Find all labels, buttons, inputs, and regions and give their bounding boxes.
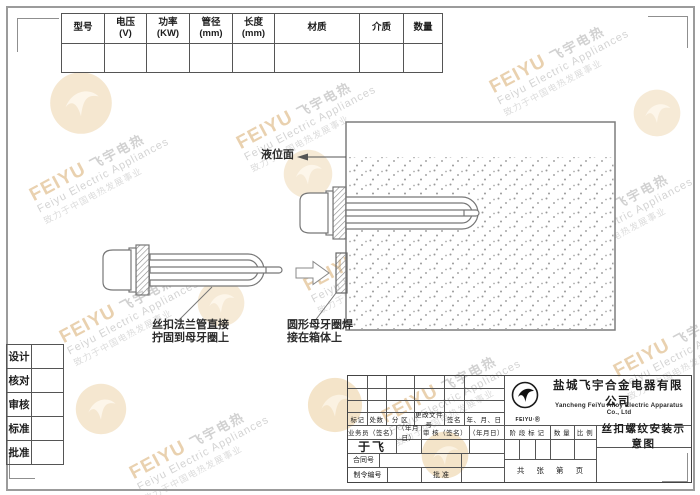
signer-name: 于飞	[348, 439, 396, 453]
ring-note: 圆形母牙圈焊 接在箱体上	[287, 319, 353, 345]
title-block: 标记 处数 分 区 更改文件号 签名 年、月、日 业务员（签名） （年月日） 审…	[347, 375, 692, 483]
grid-line	[348, 388, 504, 389]
grid-line	[379, 453, 380, 467]
ring-note-line1: 圆形母牙圈焊	[287, 319, 353, 332]
quantity-label: 数 量	[550, 425, 574, 439]
grid-line	[387, 467, 388, 482]
company-logo-icon	[510, 381, 544, 415]
revision-header-signature: 签名	[444, 412, 464, 425]
contract-no-label: 合同号	[348, 453, 379, 467]
heater-thread-block	[333, 187, 346, 239]
sign-header-reviewer: 审 核（签名）	[421, 425, 469, 439]
heater-standalone	[103, 245, 282, 295]
grid-line	[461, 453, 462, 482]
heater-center-tube	[150, 267, 282, 273]
ring-note-leader	[314, 293, 336, 322]
grid-line	[519, 439, 520, 459]
grid-line	[348, 400, 504, 401]
liquid-level-arrowhead-icon	[297, 154, 308, 161]
company-name-cn: 盐城飞宇合金电器有限公司	[548, 385, 688, 401]
company-name-en: Yancheng FeiYu Alloy Electric Apparatus …	[548, 403, 690, 415]
ring-note-line2: 接在箱体上	[287, 332, 353, 345]
heater-center-tube	[346, 210, 479, 216]
company-logo-caption: FEIYU·Ⓡ	[508, 416, 548, 423]
order-no-label: 制令编号	[348, 467, 387, 482]
liquid-level-label: 液位面	[261, 149, 294, 162]
flange-note-line2: 拧固到母牙圈上	[152, 332, 229, 345]
approve-label: 批 准	[421, 467, 461, 482]
install-direction-arrow-icon	[296, 262, 329, 285]
revision-header-count: 处数	[367, 412, 386, 425]
heater-thread-block	[136, 245, 149, 295]
revision-header-mark: 标记	[348, 412, 367, 425]
scale-label: 比 例	[574, 425, 596, 439]
flange-note: 丝扣法兰管直接 拧固到母牙圈上	[152, 319, 229, 345]
drawing-title: 丝扣螺纹安装示意图	[596, 425, 691, 447]
revision-header-date: 年、月、日	[464, 412, 504, 425]
grid-line	[535, 439, 536, 459]
tank-liquid-fill	[347, 157, 614, 329]
flange-note-line1: 丝扣法兰管直接	[152, 319, 229, 332]
stage-mark-label: 阶 段 标 记	[504, 425, 550, 439]
sheet-info: 共 张 第 页	[504, 459, 596, 482]
sign-header-date: （年月日）	[396, 425, 421, 439]
drawing-sheet: FEIYU 飞宇电热 Feiyu Electric Appliances 致力于…	[0, 0, 700, 495]
heater-terminal-cap	[300, 193, 328, 233]
mother-thread-ring	[336, 253, 347, 293]
sign-header-date: （年月日）	[469, 425, 504, 439]
heater-terminal-cap	[103, 250, 131, 290]
